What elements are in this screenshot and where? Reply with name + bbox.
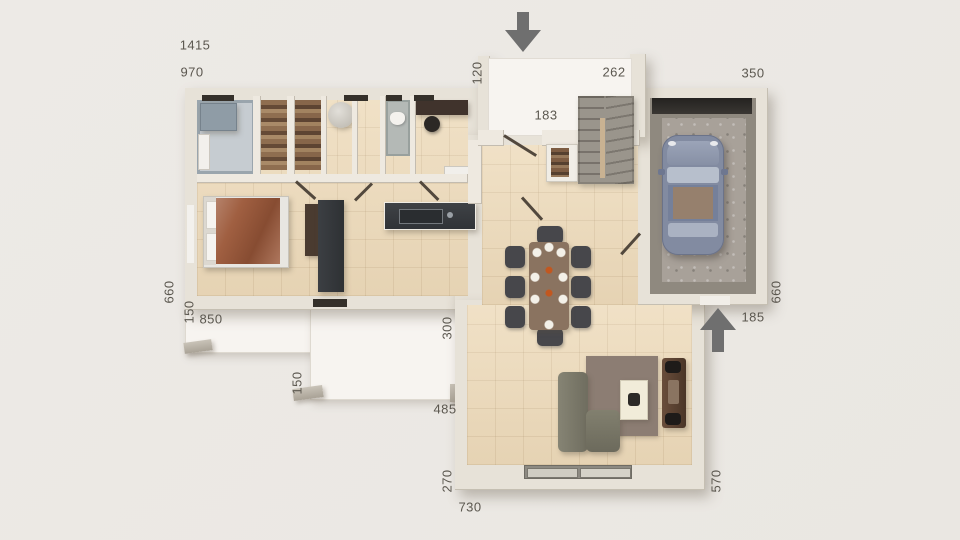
dim-485: 485 — [434, 403, 457, 416]
bedroom-window — [187, 205, 194, 263]
dim-270: 270 — [441, 470, 454, 493]
car-headlight — [668, 141, 676, 146]
dining-chair — [505, 246, 525, 268]
glass-pane — [580, 468, 631, 478]
window-strip — [202, 95, 234, 101]
dining-chair — [537, 328, 563, 346]
interior-wall — [321, 96, 327, 176]
window-strip — [414, 95, 434, 101]
coffee-table — [620, 380, 648, 420]
kitchen-counter — [318, 200, 344, 292]
car-roof — [668, 185, 718, 221]
entry-wall — [478, 130, 504, 146]
coffee-table-decor — [628, 393, 640, 406]
window-strip — [344, 95, 368, 101]
dim-150-b: 150 — [291, 372, 304, 395]
tv-console — [662, 358, 686, 428]
toilet — [390, 112, 405, 125]
shower — [200, 103, 237, 131]
window-strip — [386, 95, 402, 101]
bedroom-wardrobe — [305, 204, 319, 256]
dining-chair — [505, 276, 525, 298]
kitchen-island — [384, 202, 476, 230]
dining-table — [529, 242, 569, 330]
dim-185: 185 — [742, 311, 765, 324]
dim-850: 850 — [200, 313, 223, 326]
water-heater — [328, 102, 354, 128]
wardrobe-closet — [261, 100, 287, 170]
interior-wall — [253, 96, 261, 176]
car-mirror — [658, 169, 665, 175]
dining-chair — [505, 306, 525, 328]
glass-pane — [527, 468, 578, 478]
corridor-wall — [197, 174, 468, 183]
car-headlight — [710, 141, 718, 146]
dining-chair — [571, 276, 591, 298]
garage-side-door — [700, 296, 730, 305]
dining-chair — [571, 306, 591, 328]
dining-chair — [571, 246, 591, 268]
speaker — [665, 413, 681, 425]
dim-150-a: 150 — [183, 301, 196, 324]
staircase — [578, 96, 634, 184]
interior-wall — [287, 96, 295, 176]
bathroom-sink — [198, 134, 210, 170]
wardrobe-closet — [295, 100, 321, 170]
stair-flight-right — [606, 96, 634, 184]
bed — [203, 196, 289, 268]
tv-console-panel — [668, 380, 679, 404]
kitchen-sink — [399, 209, 443, 224]
car-sunroof — [673, 187, 713, 219]
dim-730: 730 — [459, 501, 482, 514]
sofa — [558, 372, 588, 452]
kitchen-faucet — [447, 212, 453, 218]
car-mirror — [721, 169, 728, 175]
dim-660-left: 660 — [163, 281, 176, 304]
car — [662, 135, 724, 255]
dim-1415: 1415 — [180, 39, 211, 52]
sofa-chaise — [586, 410, 620, 452]
dim-262: 262 — [603, 66, 626, 79]
garage-arrow-up-icon — [699, 308, 737, 352]
dim-350: 350 — [742, 67, 765, 80]
hall-closet-clothes — [551, 148, 569, 177]
car-windshield — [667, 167, 719, 183]
dim-183: 183 — [535, 109, 558, 122]
bed-duvet — [216, 198, 280, 264]
dim-300: 300 — [441, 317, 454, 340]
dim-970: 970 — [181, 66, 204, 79]
dim-120: 120 — [471, 62, 484, 85]
bedroom-terrace-door — [313, 299, 347, 307]
entry-arrow-down-icon — [504, 12, 542, 52]
hall-closet — [546, 144, 578, 182]
car-rear-window — [668, 223, 718, 237]
dim-660-right: 660 — [770, 281, 783, 304]
sliding-glass-door — [524, 465, 632, 479]
desk — [416, 100, 468, 115]
dim-570: 570 — [710, 470, 723, 493]
wc-room — [386, 100, 410, 156]
kitchen-divider-wall — [468, 140, 482, 204]
office-chair — [424, 116, 440, 132]
interior-wall — [352, 96, 358, 176]
speaker — [665, 361, 681, 373]
stair-rail — [600, 118, 605, 178]
garage-door — [652, 98, 752, 114]
floor-plan-canvas: 1415 970 120 262 350 183 660 150 850 150… — [0, 0, 960, 540]
terrace-lower — [310, 305, 460, 400]
